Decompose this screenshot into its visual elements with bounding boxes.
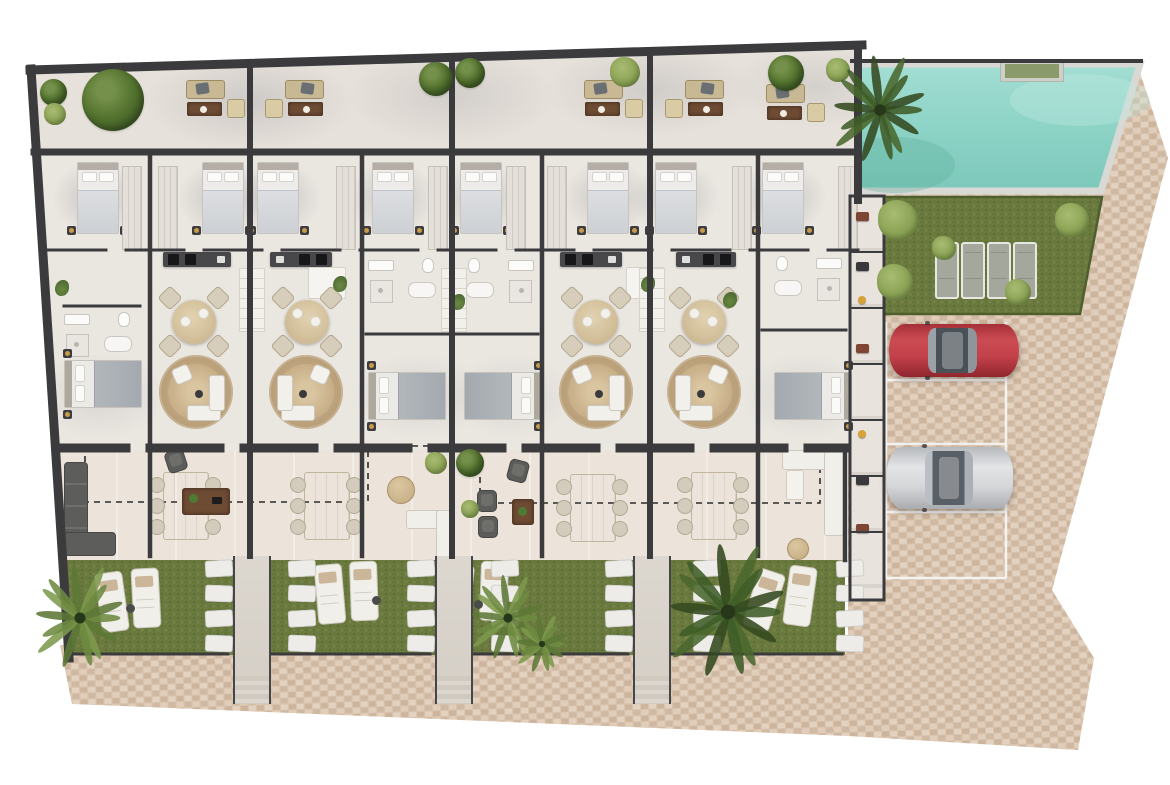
palm-fronds (832, 62, 928, 158)
tree (419, 62, 453, 96)
vegetation-layer (0, 0, 1170, 785)
bush (932, 236, 956, 260)
palm-fronds (668, 552, 788, 672)
bush (44, 103, 66, 125)
tree (456, 449, 484, 477)
bush (1055, 203, 1089, 237)
site-plan-canvas (0, 0, 1170, 785)
tree (455, 58, 485, 88)
tree (40, 79, 67, 106)
tree (82, 69, 144, 131)
tree (768, 55, 804, 91)
palm-fronds (34, 572, 126, 664)
bush (1005, 279, 1031, 305)
bush (425, 452, 447, 474)
bush (877, 264, 913, 300)
bush (878, 200, 918, 240)
bush (610, 57, 640, 87)
palm-fronds (516, 618, 568, 670)
bush (461, 500, 479, 518)
